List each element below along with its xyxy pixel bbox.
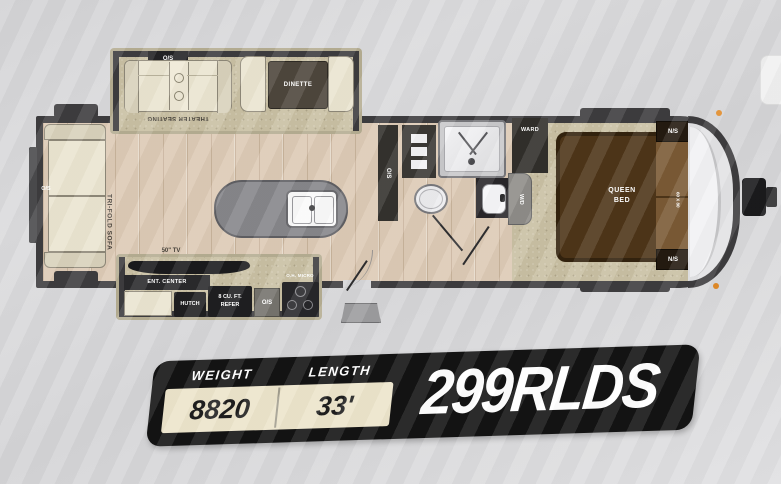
sofa-armrest-bottom bbox=[44, 252, 106, 268]
ward-wrap: WARD bbox=[512, 118, 548, 144]
refer-label-line2: REFER bbox=[221, 303, 240, 309]
badge-spec-values: 8820 33' bbox=[161, 382, 394, 433]
drawer bbox=[411, 160, 427, 169]
toilet-seat-ring bbox=[419, 189, 443, 209]
queen-bed-label-line2: BED bbox=[614, 197, 630, 204]
length-value: 33' bbox=[276, 382, 394, 430]
bed-size-wrap: 60 X 80 bbox=[672, 180, 682, 220]
tv-size-label: 50" TV bbox=[162, 248, 181, 254]
theater-seating-label: THEATER SEATING bbox=[147, 115, 209, 121]
entertainment-center: ENT. CENTER bbox=[124, 275, 210, 290]
faucet-icon bbox=[500, 194, 505, 202]
armrest-left bbox=[125, 61, 139, 113]
clearance-light bbox=[716, 110, 722, 116]
entry-step bbox=[341, 303, 381, 323]
badge-specs: WEIGHT LENGTH 8820 33' bbox=[156, 359, 400, 442]
tri-fold-sofa bbox=[44, 124, 106, 268]
tri-fold-sofa-label: TRI-FOLD SOFA bbox=[105, 194, 112, 250]
queen-bed-label-wrap: QUEEN BED bbox=[594, 182, 650, 208]
wardrobe: WARD bbox=[512, 118, 548, 173]
weight-label: WEIGHT bbox=[162, 365, 282, 384]
faucet-icon bbox=[309, 205, 315, 211]
rear-bumper bbox=[29, 147, 37, 243]
drawer bbox=[411, 147, 427, 156]
tv-icon bbox=[128, 261, 250, 274]
armrest-right bbox=[217, 61, 231, 113]
toilet bbox=[414, 184, 448, 214]
dinette-bench bbox=[328, 56, 354, 112]
kitchen-os-label: O/S bbox=[262, 300, 272, 306]
weight-value: 8820 bbox=[161, 386, 279, 434]
model-number: 299RLDS bbox=[406, 350, 673, 433]
bedroom-wall-bottom-bump bbox=[580, 281, 670, 292]
nightstand-label: N/S bbox=[668, 129, 678, 135]
nightstand: N/S bbox=[656, 249, 690, 270]
queen-bed: QUEEN BED 60 X 80 bbox=[556, 132, 698, 262]
bath-os-label: O/S bbox=[385, 168, 391, 178]
burner-icon bbox=[295, 286, 306, 297]
hitch-pin bbox=[766, 187, 777, 207]
seat-cushion-line bbox=[138, 75, 169, 76]
sofa-name-wrap: TRI-FOLD SOFA bbox=[102, 170, 114, 274]
dinette-table: DINETTE bbox=[268, 61, 328, 109]
kitchen-os-cabinet: O/S bbox=[254, 288, 280, 317]
refer-label-line1: 8 CU. FT. bbox=[218, 295, 241, 301]
front-cap bbox=[688, 116, 740, 288]
nightstand-label: N/S bbox=[668, 257, 678, 263]
theater-seating-label-wrap: THEATER SEATING bbox=[122, 112, 234, 124]
range bbox=[282, 282, 319, 317]
burner-icon bbox=[287, 300, 297, 310]
front-cap-inner-band bbox=[690, 127, 721, 277]
dinette-label: DINETTE bbox=[284, 82, 312, 88]
seat-console bbox=[169, 62, 189, 110]
wd-label: W/D bbox=[517, 194, 523, 205]
queen-bed-label-line1: QUEEN bbox=[608, 187, 635, 194]
shower-drain-icon bbox=[468, 158, 475, 165]
island-sink bbox=[286, 190, 338, 228]
sink-basin bbox=[314, 196, 334, 224]
drawer bbox=[411, 134, 427, 143]
sofa-os-label: O/S bbox=[41, 187, 50, 193]
bed-size-label: 60 X 80 bbox=[675, 192, 680, 208]
hitch-coupler bbox=[742, 178, 766, 216]
bedroom-wall-top-bump bbox=[580, 108, 670, 119]
theater-seating bbox=[124, 60, 232, 112]
sofa-cushion bbox=[48, 140, 106, 196]
sofa-armrest-top bbox=[44, 124, 106, 140]
ward-label: WARD bbox=[521, 128, 539, 134]
cupholder-icon bbox=[174, 91, 184, 101]
refrigerator: 8 CU. FT. REFER bbox=[208, 286, 252, 317]
rear-corner-top bbox=[54, 104, 98, 118]
model-badge: WEIGHT LENGTH 8820 33' 299RLDS bbox=[145, 344, 700, 446]
cupholder-icon bbox=[174, 73, 184, 83]
sofa-os-wrap: O/S bbox=[37, 185, 55, 194]
rear-corner-bottom bbox=[54, 271, 98, 286]
bath-vanity bbox=[476, 178, 512, 218]
clearance-light bbox=[713, 283, 719, 289]
rv-floorplan-sheet: O/S THEATER SEATING DINETTE O/S TRI-FOLD… bbox=[0, 0, 781, 484]
sofa-cushion bbox=[48, 196, 106, 252]
shower bbox=[438, 120, 506, 178]
badge-spec-headers: WEIGHT LENGTH bbox=[162, 362, 400, 384]
micro-label: O.H. MICRO bbox=[286, 274, 314, 279]
burner-icon bbox=[303, 300, 313, 310]
washer-dryer-cabinet: W/D bbox=[508, 173, 532, 225]
kitchen-island bbox=[214, 180, 348, 238]
bath-os-wrap: O/S bbox=[378, 125, 398, 221]
nightstand: N/S bbox=[656, 121, 690, 142]
dinette-bench bbox=[240, 56, 266, 112]
background-card-corner bbox=[760, 55, 781, 105]
length-label: LENGTH bbox=[280, 362, 400, 381]
hutch: HUTCH bbox=[174, 292, 206, 317]
bath-drawer-unit bbox=[402, 125, 436, 178]
micro-wrap: O.H. MICRO bbox=[278, 272, 322, 280]
seat-cushion-line bbox=[187, 75, 218, 76]
tv-size-wrap: 50" TV bbox=[140, 246, 202, 255]
bath-tall-cabinet: O/S bbox=[378, 125, 398, 221]
kitchen-counter bbox=[124, 291, 172, 316]
ent-center-label: ENT. CENTER bbox=[147, 280, 186, 286]
hutch-label: HUTCH bbox=[180, 302, 199, 308]
